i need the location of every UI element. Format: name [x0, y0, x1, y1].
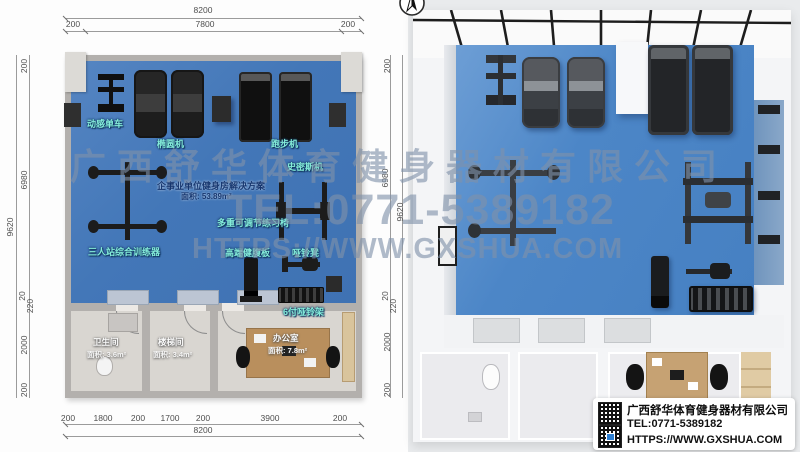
wall-mount [758, 145, 780, 154]
render-dim-5: 200 [382, 383, 392, 397]
dim-bot-2: 200 [131, 413, 145, 423]
render-ab-board [651, 256, 669, 308]
plan-elliptical-2 [171, 70, 204, 138]
render-spin-bike [486, 55, 516, 105]
trainer-seat [156, 166, 167, 179]
label-smith: 史密斯机 [287, 160, 323, 173]
render-dim-0: 200 [382, 59, 392, 73]
room-toilet-name: 卫生间 [93, 336, 119, 348]
plan-wall-block-left [64, 103, 81, 127]
dim-bot-1: 1800 [94, 413, 113, 423]
room-stairs-name: 楼梯间 [158, 336, 184, 348]
render-left-wall [444, 45, 456, 315]
plan-treadmill-2 [279, 72, 312, 142]
label-treadmill: 跑步机 [271, 137, 298, 150]
render-recess-bench-1 [473, 318, 520, 343]
info-card-company: 广西舒华体育健身器材有限公司 [627, 402, 788, 418]
dim-line-left-total [16, 55, 17, 398]
render-dim-4: 2000 [382, 333, 392, 352]
render-column [616, 42, 648, 114]
render-recess-bench-2 [538, 318, 585, 343]
dim-left-total: 9620 [5, 218, 15, 237]
rack-crossbar [683, 216, 753, 223]
dim-line-left-inner [29, 55, 30, 398]
label-spin-bike: 动感单车 [87, 117, 123, 130]
render-dim-1: 6980 [380, 169, 390, 188]
render-dumbbell-rack [689, 286, 753, 312]
plan-elliptical-1 [134, 70, 167, 138]
render-multi-trainer [468, 160, 560, 246]
trainer-bar [92, 224, 164, 229]
render-office-chair-left [626, 364, 644, 390]
plan-bench-recess-2 [177, 290, 219, 305]
render-treadmill-2 [692, 45, 733, 135]
floor-plan-panel: 8200 200 7800 200 9620 200 6980 20 220 2… [0, 0, 408, 452]
dim-top-mid: 7800 [196, 19, 215, 29]
render-dim-line-total [402, 55, 403, 398]
qr-code-top [598, 402, 622, 425]
render-toilet-fixture [482, 364, 500, 390]
dim-left-4: 2000 [19, 336, 29, 355]
plan-column-block [212, 96, 231, 122]
render-recess-bench-3 [604, 318, 651, 343]
bench-pad [302, 257, 318, 271]
trainer-seat [88, 166, 99, 179]
trainer-seat [156, 220, 167, 233]
plan-pilaster-right [341, 52, 362, 92]
trainer-bar [92, 170, 164, 175]
bench-foot [282, 256, 288, 272]
render-office-chair-right [710, 364, 728, 390]
desk-paper [304, 358, 316, 367]
dim-bot-3: 1700 [161, 413, 180, 423]
dim-top-right: 200 [341, 19, 355, 29]
plan-spin-bike [98, 74, 124, 112]
render-drain [468, 412, 482, 422]
info-card-tel: TEL:0771-5389182 [627, 418, 722, 430]
room-office-area: 面积: 7.8m² [268, 345, 307, 356]
dim-top-total: 8200 [194, 5, 213, 15]
trainer-seat [468, 165, 481, 180]
plan-dumbbell-rack [278, 287, 324, 303]
rack-seat [705, 192, 731, 208]
room-stairs-area: 面积: 3.4m² [153, 349, 192, 360]
plan-pilaster-left [65, 52, 86, 92]
trainer-bar [472, 228, 556, 234]
render-wall-mounts [756, 105, 784, 280]
dim-line-top-inner [65, 31, 362, 32]
plan-office-chair-left [236, 346, 250, 368]
label-dumbbell-bench: 哑铃凳 [292, 246, 319, 259]
desk-paper [688, 382, 698, 390]
render-toilet-room [420, 352, 510, 440]
plan-ab-board [244, 257, 258, 301]
render-elliptical-1 [522, 57, 560, 128]
rack-rail [745, 162, 751, 244]
dim-bottom-total: 8200 [194, 425, 213, 435]
room-toilet-area: 面积: 3.6m² [87, 349, 126, 360]
screenshot-root: 8200 200 7800 200 9620 200 6980 20 220 2… [0, 0, 800, 452]
desk-monitor [670, 370, 684, 380]
plan-smith-machine [276, 182, 330, 240]
trainer-seat [88, 220, 99, 233]
plan-washbasin [108, 313, 138, 332]
plan-ab-board-base [240, 296, 262, 302]
dim-top-left: 200 [66, 19, 80, 29]
dim-bot-5: 3900 [261, 413, 280, 423]
label-elliptical: 椭圆机 [157, 137, 184, 150]
dim-line-bottom-inner [65, 424, 362, 425]
dim-left-0: 200 [19, 59, 29, 73]
rack-rail [685, 162, 691, 244]
render-smith-rack [683, 158, 756, 248]
plan-office-cabinet [342, 312, 355, 382]
plan-office-chair-right [326, 346, 340, 368]
render-stair-room [518, 352, 598, 440]
rack-crossbar [683, 178, 753, 185]
north-compass-icon [398, 0, 426, 18]
trainer-seat [468, 223, 481, 238]
plan-wall-block-right [329, 103, 346, 127]
wall-mount [758, 235, 780, 244]
label-ab-board: 高端健腹板 [225, 246, 270, 259]
wall-mount [758, 105, 780, 114]
render-bench [686, 260, 732, 282]
qr-logo [606, 433, 615, 441]
render-elliptical-2 [567, 57, 605, 128]
desk-paper [652, 358, 662, 366]
plan-treadmill-1 [239, 72, 272, 142]
desk-paper [254, 334, 266, 343]
qr-code-bottom [598, 425, 622, 448]
dim-bot-6: 200 [333, 413, 347, 423]
render-dim-3: 220 [388, 299, 398, 313]
plan-storage-box [326, 276, 342, 292]
render-dim-column: 200 6980 9620 20 220 2000 200 [378, 0, 408, 452]
render-3d-panel [408, 0, 800, 452]
info-card: 广西舒华体育健身器材有限公司 TEL:0771-5389182 HTTPS://… [593, 398, 795, 450]
label-multi-trainer: 三人站综合训练器 [88, 245, 160, 258]
plan-multi-trainer [88, 162, 168, 240]
plan-room-wall-2 [210, 311, 218, 391]
dim-left-5: 200 [19, 383, 29, 397]
trainer-bar [472, 170, 556, 176]
dim-line-bottom-total [65, 436, 362, 437]
render-wall-frame [438, 226, 457, 266]
render-dim-total: 9620 [395, 203, 405, 222]
dim-left-3: 220 [25, 299, 35, 313]
label-adjustable-bench: 多重可调节练习椅 [217, 216, 289, 229]
label-dumbbell-rack: 6付哑铃架 [283, 305, 324, 318]
dim-bot-4: 200 [196, 413, 210, 423]
wall-mount [758, 191, 780, 200]
plan-area: 面积: 53.89m² [181, 191, 232, 202]
render-treadmill-1 [648, 45, 689, 135]
smith-plate [320, 202, 330, 220]
dim-left-1: 6980 [19, 171, 29, 190]
trainer-seat [547, 165, 560, 180]
room-office-name: 办公室 [273, 332, 299, 344]
plan-bench-recess-1 [107, 290, 149, 305]
plan-room-wall-1 [142, 311, 150, 391]
bench-pad [710, 263, 730, 279]
info-card-url: HTTPS://WWW.GXSHUA.COM [627, 434, 782, 446]
